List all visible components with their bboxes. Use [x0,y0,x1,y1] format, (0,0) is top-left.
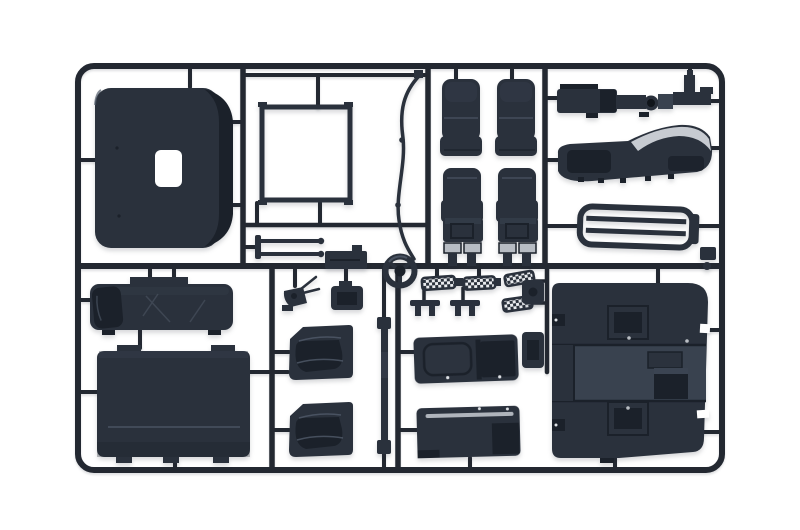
part-door-shell-upper [413,334,519,384]
part-hinge-blocks [522,280,544,368]
part-door-card-upper [289,325,353,380]
part-door-card-lower [289,402,353,457]
part-seat-backrest-left [440,79,482,156]
part-small-panel [325,245,367,269]
part-door-shell-lower [416,406,520,459]
part-seat-left [441,168,483,266]
part-steering-wheel [386,256,415,285]
bed-pillow [91,286,123,329]
part-seat-right [496,168,538,266]
part-wiper-rod [395,70,423,259]
roof-sunroof-hole [155,150,182,187]
part-cab-floor [552,283,710,463]
part-grille [579,206,716,270]
sprue-photo-svg: Plastic scale model kit sprue (injection… [0,0,800,530]
part-seat-backrest-right [495,79,537,156]
part-roof-deflector [558,125,712,183]
part-roof-panel [95,88,233,248]
part-trim-strip [377,317,391,454]
part-window-frame [258,102,353,205]
part-seat-base-bracket [331,281,363,310]
part-pedal-unit [282,277,319,311]
sprue-photo: Plastic scale model kit sprue (injection… [0,0,800,530]
part-back-wall [97,345,250,463]
part-thin-rods [255,235,324,259]
part-chassis-unit [557,70,713,118]
part-mount-brackets [410,300,480,316]
part-bunk-bed [90,277,233,335]
